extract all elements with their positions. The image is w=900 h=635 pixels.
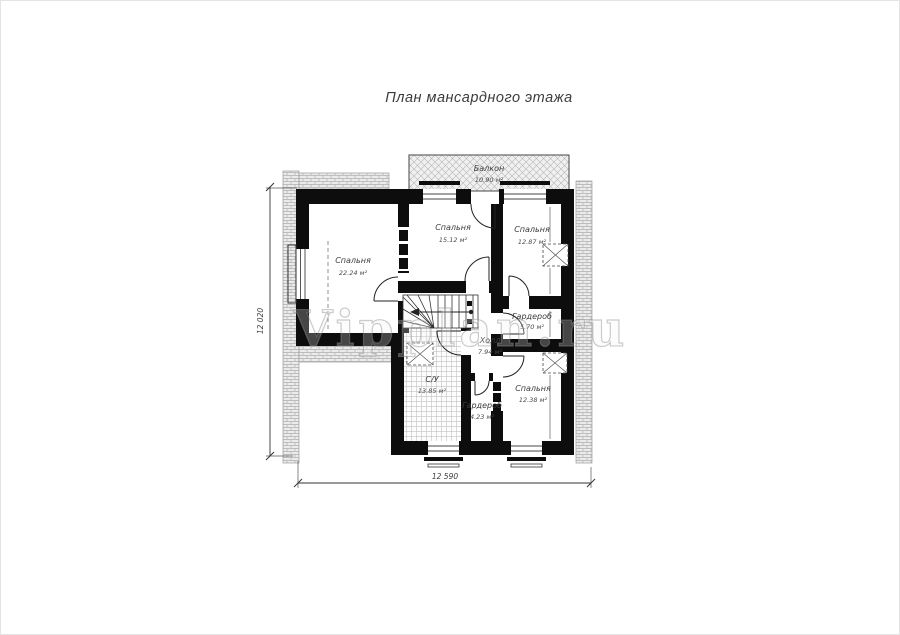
room-area-bedroom-right: 12.87 м² — [518, 238, 547, 246]
dim-label-bottom: 12 590 — [432, 472, 458, 481]
window — [511, 441, 542, 455]
window-lintel — [500, 181, 550, 185]
room-area-bedroom-left: 22.24 м² — [339, 269, 368, 277]
balcony-floor — [409, 155, 569, 191]
floor-plan-canvas: Спальня 22.24 м² Спальня 15.12 м² Спальн… — [1, 1, 899, 634]
wall-segment — [296, 204, 309, 249]
room-area-bathroom: 13.85 м² — [418, 387, 447, 395]
dim-label-left: 12 020 — [256, 308, 265, 334]
wall-segment — [398, 204, 409, 229]
window — [296, 249, 309, 299]
wall-segment — [461, 355, 471, 441]
wall-segment — [471, 373, 475, 381]
door-wardrobe-423 — [475, 381, 489, 395]
room-area-bedroom-1238: 12.38 м² — [519, 396, 548, 404]
door-bedroom-left — [374, 277, 398, 301]
window — [504, 189, 546, 204]
wall-segment — [391, 441, 428, 455]
balcony-area — [409, 155, 569, 191]
window-sill — [507, 457, 546, 461]
room-name-bedroom-right: Спальня — [514, 225, 550, 234]
door-bedroom-right — [509, 276, 529, 296]
window-sill-line — [511, 464, 542, 467]
room-name-bedroom-mid: Спальня — [435, 223, 471, 232]
room-name-bedroom-1238: Спальня — [515, 384, 551, 393]
wall-segment — [542, 441, 574, 455]
door-bedroom-1238 — [503, 356, 524, 377]
wall-segment — [546, 189, 574, 204]
room-area-bedroom-mid: 15.12 м² — [439, 236, 468, 244]
roof-strip-top-left — [299, 173, 389, 189]
floor-plan-page: Спальня 22.24 м² Спальня 15.12 м² Спальн… — [0, 0, 900, 635]
page-title: План мансардного этажа — [385, 90, 572, 106]
window-lintel — [419, 181, 460, 185]
wall-segment — [489, 373, 493, 381]
wall-segment — [296, 189, 423, 204]
room-name-wardrobe-423: Гардероб — [462, 401, 502, 410]
window-sill — [424, 457, 463, 461]
window — [423, 189, 456, 204]
wall-segment — [391, 346, 404, 455]
room-name-balcony: Балкон — [474, 164, 504, 173]
flue-square — [493, 382, 501, 391]
window-sill-line — [428, 464, 459, 467]
flue-square — [399, 244, 408, 255]
wall-segment — [398, 281, 466, 293]
door-bedroom-mid — [465, 257, 489, 281]
window — [428, 441, 459, 455]
wall-segment — [499, 189, 504, 204]
flue-square — [399, 230, 408, 241]
room-area-balcony: 10.90 м² — [475, 176, 504, 184]
wall-segment — [459, 441, 511, 455]
room-area-wardrobe-423: 4.23 м² — [470, 413, 494, 421]
flue-square — [399, 258, 408, 269]
room-name-bathroom: С/У — [425, 375, 439, 384]
watermark: Vipplan.ru — [293, 299, 629, 358]
wall-segment — [456, 189, 471, 204]
room-name-bedroom-left: Спальня — [335, 256, 371, 265]
